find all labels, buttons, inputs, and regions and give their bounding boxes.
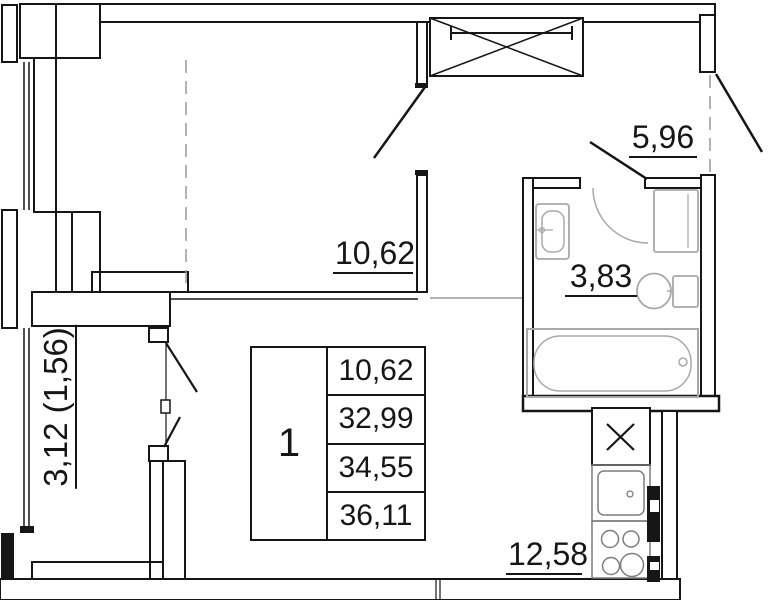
room-count-cell: 1 <box>252 348 328 539</box>
balcony-glazing <box>1 328 34 578</box>
balcony-door-swing <box>164 343 197 447</box>
living-room-window <box>34 58 56 212</box>
bathroom-sink <box>536 204 569 259</box>
hall-area-label: 5,96 <box>629 121 697 158</box>
wall-living-hall <box>415 22 428 292</box>
entrance-wall <box>700 15 715 72</box>
closet <box>430 18 583 76</box>
table-row: 36,11 <box>328 493 424 539</box>
balcony-area-label: 3,12 (1,56) <box>39 325 77 489</box>
table-row: 32,99 <box>328 396 424 444</box>
left-facade-pier-middle <box>2 210 17 328</box>
living-room-door-swing <box>374 87 425 158</box>
service-risers <box>647 486 660 582</box>
wall-living-balcony <box>32 272 418 326</box>
kitchen-right-wall <box>662 411 677 579</box>
toilet <box>637 274 698 309</box>
vent-shaft <box>592 408 650 465</box>
kitchen-area-label: 12,58 <box>506 538 582 575</box>
left-glazing-upper <box>24 62 29 210</box>
table-row: 10,62 <box>328 348 424 396</box>
table-row: 34,55 <box>328 445 424 493</box>
exterior-wall-bottom <box>0 579 680 600</box>
floor-plan: 10,62 5,96 3,83 12,58 3,12 (1,56) 1 10,6… <box>0 0 768 600</box>
left-facade-pier-top <box>2 5 17 62</box>
areas-column: 10,62 32,99 34,55 36,11 <box>328 348 424 539</box>
exterior-wall-top <box>20 4 715 58</box>
washing-machine <box>654 190 698 252</box>
apartment-info-table: 1 10,62 32,99 34,55 36,11 <box>250 346 426 541</box>
left-wall-block <box>56 212 100 292</box>
living-room-area-label: 10,62 <box>333 237 413 274</box>
bathroom-area-label: 3,83 <box>565 260 637 297</box>
stove <box>592 521 650 578</box>
bathtub <box>527 329 698 397</box>
entrance-door-swing <box>716 74 762 152</box>
balcony-bottom-wall <box>32 562 163 579</box>
kitchen-sink <box>592 465 650 521</box>
